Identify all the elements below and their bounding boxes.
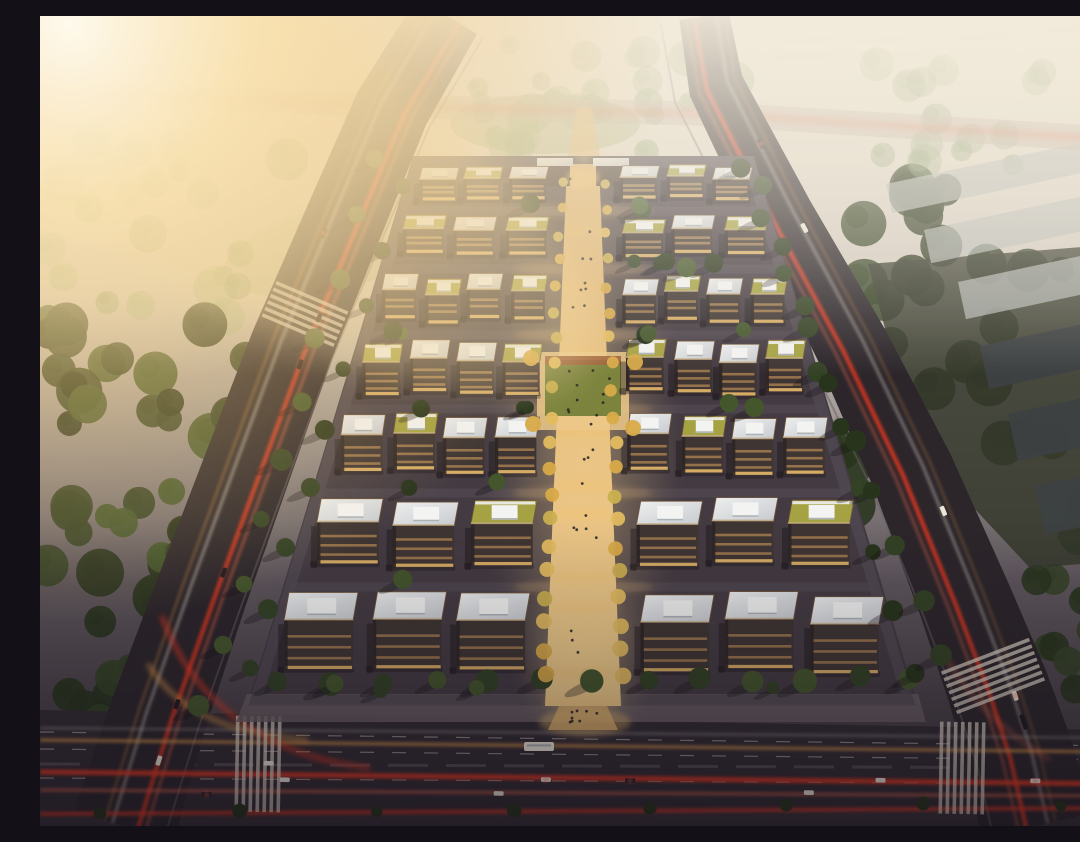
- atmosphere-glare-layer: [40, 16, 1080, 826]
- aerial-architectural-rendering: [40, 16, 1080, 826]
- scene-svg: [40, 16, 1080, 826]
